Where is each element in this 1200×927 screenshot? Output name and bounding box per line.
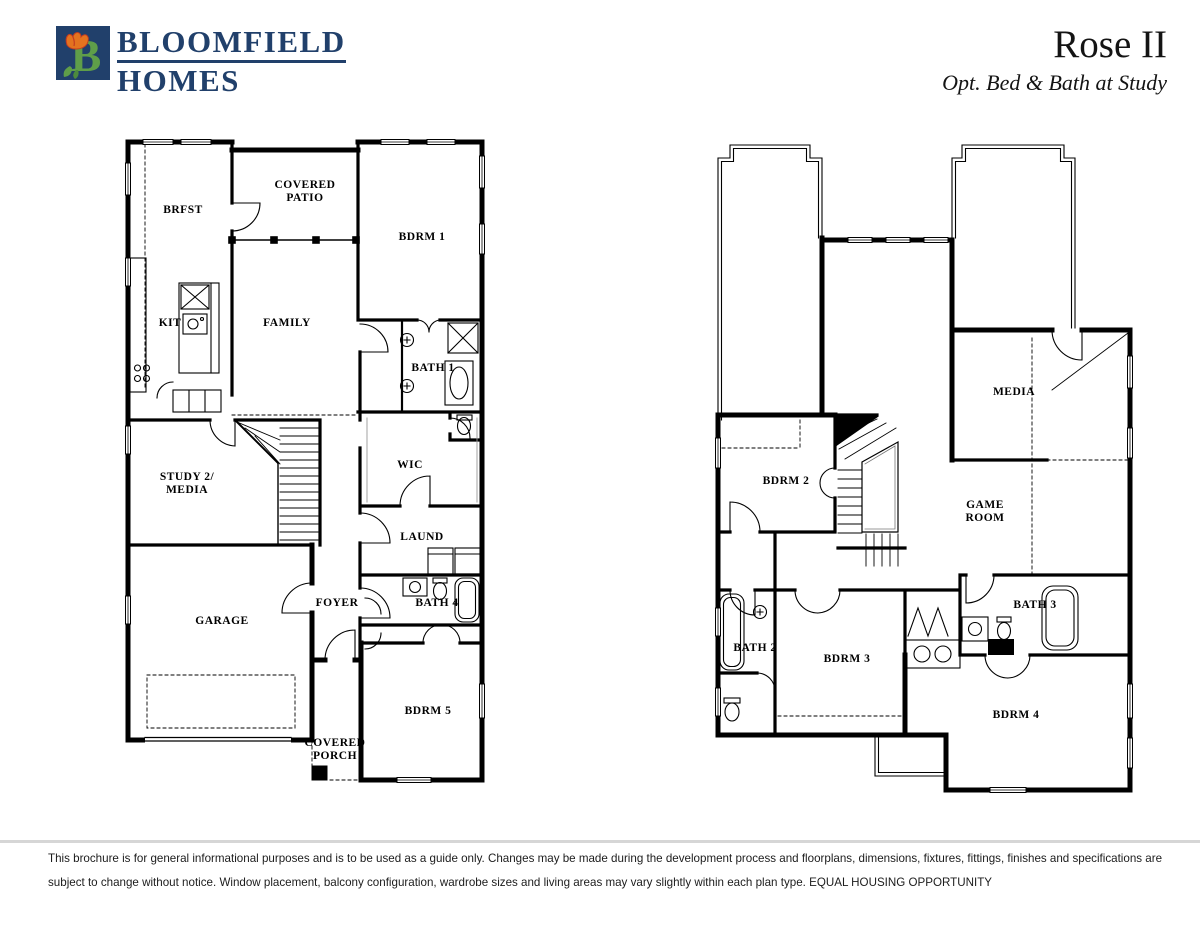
plan2-vanity-fixtures: [905, 608, 960, 668]
plan-title-block: Rose II Opt. Bed & Bath at Study: [942, 24, 1167, 96]
disclaimer-text: This brochure is for general information…: [48, 847, 1162, 895]
room-label-bath3: BATH 3: [1013, 599, 1056, 611]
first-floor-plan: BRFST COVERED PATIO BDRM 1 KIT FAMILY BA…: [115, 128, 495, 808]
tulip-b-logo-icon: B: [56, 26, 110, 80]
room-label-study-1: STUDY 2/: [160, 471, 215, 483]
room-label-brfst: BRFST: [163, 204, 203, 216]
plan1-kitchen-fixtures: [130, 258, 221, 412]
plan-subtitle: Opt. Bed & Bath at Study: [942, 70, 1167, 96]
room-label-garage: GARAGE: [195, 615, 248, 627]
room-label-laund: LAUND: [400, 531, 443, 543]
plan1-laundry-fixtures: [428, 548, 480, 574]
brand-name-line1: BLOOMFIELD: [117, 26, 346, 57]
room-label-covered-patio-1: COVERED: [274, 179, 335, 191]
plan-title: Rose II: [942, 24, 1167, 67]
room-label-bdrm4: BDRM 4: [993, 709, 1040, 721]
room-label-bath4: BATH 4: [415, 597, 458, 609]
room-label-foyer: FOYER: [316, 597, 359, 609]
plan1-stair-treads: [237, 422, 318, 545]
room-label-bdrm1: BDRM 1: [399, 231, 446, 243]
room-label-bdrm5: BDRM 5: [405, 705, 452, 717]
brochure-page: B BLOOMFIELD HOMES Rose II Opt. Bed & Ba…: [0, 0, 1200, 927]
room-label-covered-patio-2: PATIO: [286, 192, 323, 204]
room-label-covered-porch-2: PORCH: [313, 750, 357, 762]
brand-wordmark: BLOOMFIELD HOMES: [117, 26, 346, 96]
plan1-patio-beam: [229, 237, 359, 243]
room-label-game-room-2: ROOM: [965, 512, 1004, 524]
disclaimer-line2: subject to change without notice. Window…: [48, 871, 1162, 895]
plan2-exterior-walls: [718, 238, 1130, 790]
room-label-bath2: BATH 2: [733, 642, 776, 654]
room-label-bdrm2: BDRM 2: [763, 475, 810, 487]
room-label-wic: WIC: [397, 459, 423, 471]
second-floor-plan: MEDIA BDRM 2 GAME ROOM BATH 2 BDRM 3 BAT…: [700, 128, 1145, 808]
room-label-kit: KIT: [159, 317, 182, 329]
disclaimer-line1: This brochure is for general information…: [48, 847, 1162, 871]
plan1-porch-column: [312, 766, 327, 780]
plan2-stairs: [837, 417, 898, 566]
plan2-door-swings: [730, 330, 1128, 691]
plan2-room-labels: MEDIA BDRM 2 GAME ROOM BATH 2 BDRM 3 BAT…: [733, 386, 1056, 721]
plan2-dashed-lines: [722, 338, 1128, 716]
room-label-study-2: MEDIA: [166, 484, 208, 496]
footer-divider: [0, 840, 1200, 843]
room-label-family: FAMILY: [263, 317, 311, 329]
plan1-bath1-fixtures: [401, 323, 479, 435]
plan2-bath3-fixtures: [962, 586, 1078, 655]
brand-name-line2: HOMES: [117, 65, 346, 96]
plan2-bath2-fixtures: [720, 594, 767, 721]
plan1-door-swings: [157, 203, 470, 660]
plan2-interior-walls: [718, 415, 1130, 735]
room-label-game-room-1: GAME: [966, 499, 1004, 511]
plan1-garage-door: [145, 734, 291, 745]
room-label-covered-porch-1: COVERED: [304, 737, 365, 749]
plan1-interior-walls: [128, 142, 482, 660]
bloomfield-homes-logo: B BLOOMFIELD HOMES: [56, 26, 346, 96]
room-label-media: MEDIA: [993, 386, 1035, 398]
room-label-bath1: BATH 1: [411, 362, 454, 374]
plan2-windows: [716, 238, 1133, 793]
room-label-bdrm3: BDRM 3: [824, 653, 871, 665]
